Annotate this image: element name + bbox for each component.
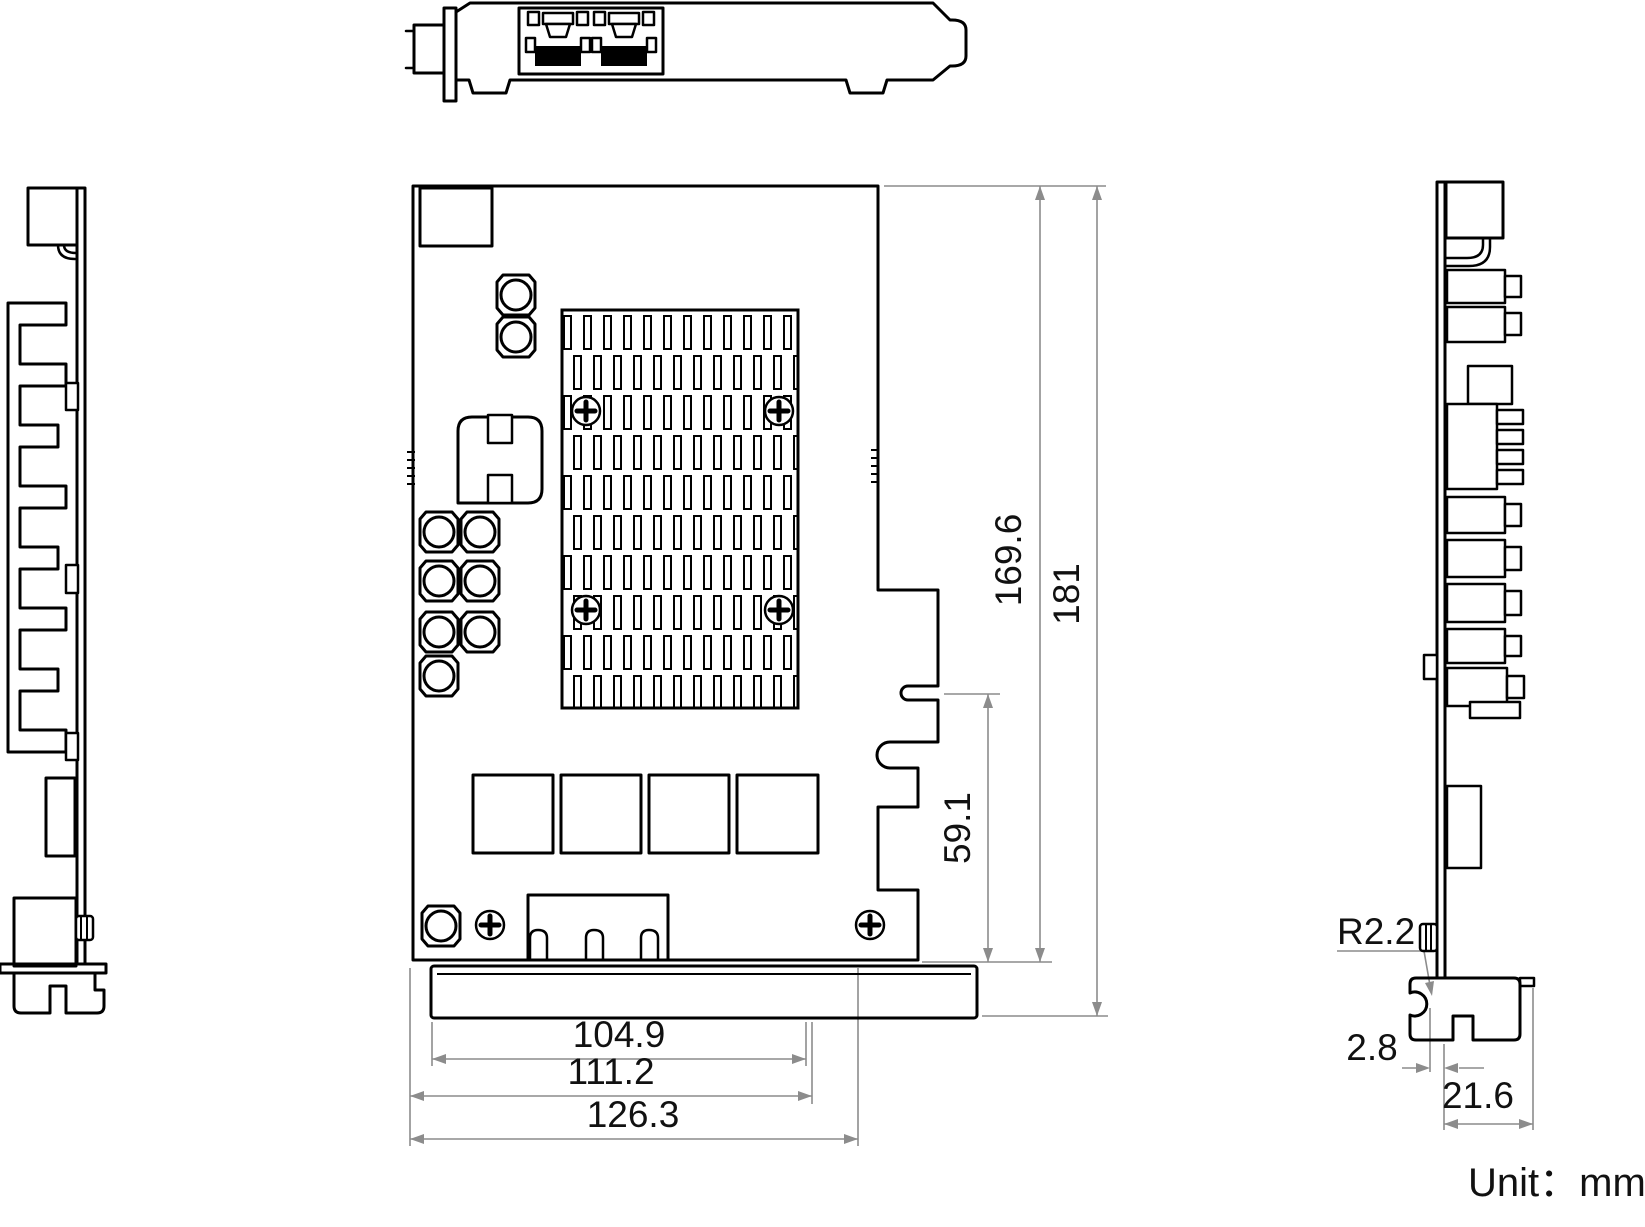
component-stub [1497, 470, 1523, 484]
board-tab-notch [66, 733, 78, 760]
dim-label-pcb-total-width: 126.3 [587, 1094, 680, 1135]
arrowhead-icon [983, 694, 993, 708]
arrowhead-icon [1519, 1119, 1533, 1129]
arrowhead-icon [1444, 1119, 1458, 1129]
component-stub [1497, 430, 1523, 444]
right-side-view [1410, 182, 1534, 1040]
capacitor [422, 906, 460, 946]
arrowhead-icon [792, 1054, 806, 1064]
component-stub [1505, 591, 1521, 615]
screw-icon [476, 911, 504, 939]
screw-icon [572, 397, 600, 425]
bracket-top-tab [28, 188, 77, 245]
component-stub [1505, 504, 1521, 526]
board-tab-notch [66, 565, 78, 593]
capacitor [461, 612, 499, 652]
bracket-top-tab [1446, 182, 1503, 238]
thumbscrew-side [76, 916, 93, 940]
main-front-view [407, 186, 977, 1018]
component-block [1447, 629, 1505, 663]
dim-label-goldfinger-width: 104.9 [573, 1014, 666, 1055]
left-side-view [0, 188, 106, 1013]
capacitor [420, 612, 458, 652]
component-block [1447, 404, 1497, 489]
capacitor [420, 656, 458, 696]
dim-label-total-height: 181 [1046, 563, 1087, 625]
bracket-foot-profile [14, 973, 104, 1013]
component-stub [1505, 313, 1521, 335]
component-stub [1497, 410, 1523, 424]
chip [737, 775, 818, 853]
unit-note: Unit：mm [1468, 1161, 1645, 1205]
arrowhead-icon [1092, 186, 1102, 200]
chip [561, 775, 641, 853]
capacitor [497, 275, 535, 315]
connector-pins [530, 930, 658, 960]
component-stub [1505, 276, 1521, 297]
component-block [1447, 270, 1505, 303]
arrowhead-icon [1444, 1063, 1458, 1073]
component-block [1470, 702, 1520, 718]
dim-label-bracket-corner-radius: R2.2 [1337, 911, 1415, 952]
capacitor [420, 561, 458, 601]
arrowhead-icon [983, 948, 993, 962]
component-stub [1507, 676, 1524, 698]
screw-icon [765, 397, 793, 425]
component-stub [1505, 636, 1521, 656]
bracket-tab [414, 25, 444, 73]
rj45-port-icon [592, 12, 656, 66]
drawing-canvas: 59.1 169.6 181 104.9 111.2 126.3 R [0, 0, 1645, 1227]
dim-label-bracket-notch-offset: 2.8 [1346, 1027, 1397, 1068]
arrowhead-icon [1092, 1002, 1102, 1016]
capacitor [461, 561, 499, 601]
component-block [1447, 786, 1481, 868]
rj45-port-icon [526, 12, 590, 66]
component-stub [1497, 450, 1523, 464]
capacitor [497, 317, 535, 357]
pcb-edge-profile [1437, 182, 1445, 978]
screw-icon [765, 596, 793, 624]
bracket-face-edge [444, 8, 456, 101]
component-block [1447, 584, 1505, 622]
arrowhead-icon [1425, 981, 1434, 996]
inductor-notch [488, 475, 512, 503]
component-block [420, 188, 492, 246]
inductor-notch [488, 415, 512, 443]
heatsink [562, 310, 798, 708]
dim-label-edge-notch-height: 59.1 [937, 792, 978, 864]
capacitor [461, 512, 499, 552]
arrowhead-icon [432, 1054, 446, 1064]
bracket-bend [58, 245, 76, 259]
arrowhead-icon [410, 1091, 424, 1101]
dim-label-pcb-lower-width: 111.2 [567, 1051, 654, 1092]
arrowhead-icon [1035, 186, 1045, 200]
dim-label-pcb-height: 169.6 [988, 514, 1029, 607]
board-tab-notch [66, 383, 78, 410]
bracket-foot-profile [1410, 978, 1520, 1040]
arrowhead-icon [1035, 948, 1045, 962]
component-block [1468, 366, 1512, 404]
top-view-bracket [406, 3, 966, 101]
capacitor [420, 512, 458, 552]
arrowhead-icon [798, 1091, 812, 1101]
arrowhead-icon [844, 1134, 858, 1144]
foot-plate-tab [1520, 978, 1534, 986]
bracket-foot-block [14, 898, 76, 966]
component-block [1447, 668, 1507, 706]
leader-line-r2-2 [1337, 951, 1431, 991]
component-block [1447, 307, 1505, 342]
arrowhead-icon [410, 1134, 424, 1144]
screw-icon [856, 911, 884, 939]
chip [649, 775, 729, 853]
chip [473, 775, 553, 853]
component-block [46, 778, 75, 856]
component-block [1447, 497, 1505, 533]
screw-icon [572, 596, 600, 624]
component-stub [1505, 547, 1521, 570]
bracket-bend [1446, 238, 1490, 266]
dim-label-bracket-foot-width: 21.6 [1442, 1075, 1514, 1116]
power-connector [528, 895, 668, 960]
engineering-drawing-page: 59.1 169.6 181 104.9 111.2 126.3 R [0, 0, 1645, 1227]
heatsink-fins-profile [8, 303, 66, 752]
thumbscrew-side [1420, 924, 1437, 951]
board-tab-notch [1424, 655, 1437, 679]
arrowhead-icon [1416, 1063, 1430, 1073]
component-block [1447, 540, 1505, 577]
